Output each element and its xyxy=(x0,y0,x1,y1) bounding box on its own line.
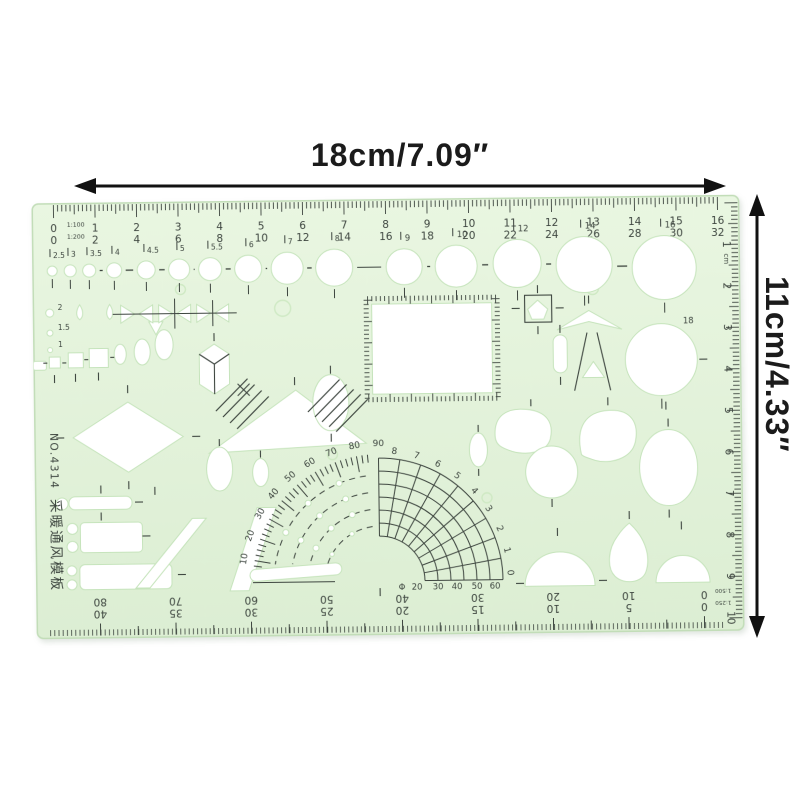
circle-cutout xyxy=(47,266,57,276)
arrow-head-bottom xyxy=(749,616,765,638)
diameter-label: 3.5 xyxy=(90,249,102,258)
ellipse-cutout xyxy=(312,374,349,430)
ruler-number: 50 xyxy=(320,593,334,605)
ruler-number: 4 xyxy=(721,365,733,372)
leaf-cutout xyxy=(579,410,636,462)
diameter-label: 16 xyxy=(665,220,676,230)
ruler-number: 30 xyxy=(471,591,485,603)
protractor-diameter: 30 xyxy=(433,582,444,592)
ruler-number: 10 xyxy=(255,232,269,244)
rectangle-cutout xyxy=(372,303,493,394)
ellipse-cutout xyxy=(114,344,126,364)
ruler-number: 35 xyxy=(169,607,183,619)
arc-dot xyxy=(336,480,342,486)
circle-cutout xyxy=(47,330,53,336)
round-cutout xyxy=(525,446,578,499)
product-photo: 18cm/7.09″ 11cm/4.33″ xyxy=(0,0,800,800)
diameter-label: 18 xyxy=(683,316,694,326)
arc-dot xyxy=(328,525,334,531)
ruler-number: 5 xyxy=(625,601,632,613)
protractor-diameter: 50 xyxy=(472,582,483,592)
ruler-number: 2 xyxy=(92,235,99,247)
scale-label: 1:250 xyxy=(715,599,732,605)
circle-cutout xyxy=(235,255,262,282)
model-number: NO.4314 xyxy=(47,433,60,489)
radiator-cutout xyxy=(69,496,132,510)
drafting-template: 1:100 1:200 cm 1:500 1:250 NO.4314 采暖通风模… xyxy=(31,195,744,640)
ruler-number: 40 xyxy=(395,592,409,604)
arc-dot xyxy=(317,513,323,519)
protractor-diameter: 40 xyxy=(452,582,463,592)
ruler-number: 60 xyxy=(244,594,258,606)
circle-cutout xyxy=(435,245,478,288)
square-cutout xyxy=(68,353,83,368)
diameter-label: 14 xyxy=(585,221,596,231)
arrow-head-top xyxy=(749,194,765,216)
radiator-cutout xyxy=(80,522,142,553)
circle-cutout xyxy=(83,264,96,277)
ellipse-cutout xyxy=(206,447,233,491)
ruler-number: 20 xyxy=(546,590,560,602)
diameter-label: 10 xyxy=(457,230,468,240)
diameter-label: 7 xyxy=(288,237,293,246)
ruler-number: 18 xyxy=(421,230,435,242)
diameter-label: 12 xyxy=(518,224,529,234)
ruler-number: 30 xyxy=(245,606,259,618)
ruler-number: 3 xyxy=(721,324,733,331)
ruler-number: 16 xyxy=(379,231,393,243)
ruler-number: 1 xyxy=(720,241,732,248)
unit-label: cm xyxy=(722,253,730,264)
ruler-number: 5 xyxy=(722,407,734,414)
circle-cutout xyxy=(64,265,76,277)
ruler-number: 5 xyxy=(258,220,265,232)
ruler-number: 28 xyxy=(628,228,642,240)
ruler-number: 10 xyxy=(724,611,736,625)
scale-label: 1:100 xyxy=(67,222,85,229)
circle-cutout xyxy=(556,236,613,293)
ruler-number: 12 xyxy=(296,232,310,244)
diameter-label: 9 xyxy=(405,234,411,244)
ellipse-cutout xyxy=(252,458,268,486)
arc-dot xyxy=(298,537,304,543)
ruler-number: 70 xyxy=(169,595,183,607)
protractor-diameter: 60 xyxy=(490,582,501,592)
scale-label: 1:200 xyxy=(67,234,85,241)
ruler-number: 6 xyxy=(722,448,734,455)
circle-cutout xyxy=(632,235,697,300)
ruler-number: 8 xyxy=(382,219,389,231)
ruler-number: 9 xyxy=(424,218,431,230)
circle-cutout xyxy=(48,348,53,353)
protractor-diameter: 20 xyxy=(412,583,423,593)
ruler-number: 0 xyxy=(50,235,57,247)
ruler-number: 0 xyxy=(50,223,57,235)
ruler-number: 0 xyxy=(701,588,708,600)
width-dimension-label: 18cm/7.09″ xyxy=(0,137,800,174)
ruler-number: 10 xyxy=(462,218,476,230)
circle-cutout xyxy=(137,261,155,279)
circle-cutout xyxy=(386,249,422,285)
diameter-label: 1 xyxy=(58,340,63,349)
protractor-degree: 10 xyxy=(239,552,251,565)
ruler-number: 11 xyxy=(503,217,517,229)
ruler-number: 0 xyxy=(701,600,708,612)
ruler-number: 7 xyxy=(341,219,348,231)
circle-cutout xyxy=(271,252,303,284)
circle-cutout xyxy=(107,263,122,278)
arrow-head-right xyxy=(704,178,726,194)
diameter-label: 2 xyxy=(58,303,63,312)
circle-cutout xyxy=(315,249,352,286)
radiator-end-circle xyxy=(67,580,77,590)
ruler-number: 14 xyxy=(628,216,642,228)
diameter-label: 3 xyxy=(71,250,76,259)
ruler-number: 10 xyxy=(622,589,636,601)
ruler-number: 4 xyxy=(133,234,140,246)
blob-cutout xyxy=(495,409,552,454)
ruler-number: 2 xyxy=(720,282,732,289)
ruler-number: 4 xyxy=(216,221,223,233)
ruler-number: 24 xyxy=(545,229,559,241)
ruler-number: 6 xyxy=(299,220,306,232)
arc-dot xyxy=(350,531,355,536)
radiator-end-circle xyxy=(67,541,78,552)
height-dimension-arrow xyxy=(744,190,770,642)
ruler-number: 20 xyxy=(396,604,410,616)
ellipse-cutout xyxy=(134,339,150,365)
ruler-number: 3 xyxy=(175,222,182,234)
ruler-number: 80 xyxy=(93,595,107,607)
ruler-number: 15 xyxy=(471,603,485,615)
width-dimension-arrow xyxy=(70,174,730,198)
small-rect-cutout xyxy=(33,361,46,370)
diameter-label: 1.5 xyxy=(58,323,70,332)
circle-cutout xyxy=(625,323,698,396)
arc-dot xyxy=(283,529,289,535)
diameter-label: 5.5 xyxy=(211,243,223,252)
ruler-number: 25 xyxy=(320,605,334,617)
ruler-number: 1 xyxy=(92,223,99,235)
square-cutout xyxy=(89,348,108,367)
slot-cutout xyxy=(553,335,567,373)
arrow-head-left xyxy=(74,178,96,194)
scale-label: 1:500 xyxy=(715,587,732,593)
arc-dot xyxy=(313,545,319,551)
ruler-number: 32 xyxy=(711,227,725,239)
protractor-grid-number: 0 xyxy=(505,570,515,577)
ruler-number: 2 xyxy=(133,222,140,234)
diameter-label: 4 xyxy=(115,248,120,257)
arc-dot xyxy=(330,552,335,557)
circle-cutout xyxy=(493,239,542,288)
protractor-degree: 80 xyxy=(348,440,361,452)
radiator-end-circle xyxy=(67,566,77,576)
ruler-number: 40 xyxy=(94,607,108,619)
circle-cutout xyxy=(169,259,190,280)
ruler-number: 9 xyxy=(724,573,736,580)
arc-dot xyxy=(349,512,355,518)
diameter-label: 2.5 xyxy=(53,251,65,260)
ruler-number: 8 xyxy=(723,531,735,538)
ruler-number: 12 xyxy=(545,217,559,229)
square-cutout xyxy=(49,357,60,368)
radiator-end-circle xyxy=(67,523,78,534)
arc-dot xyxy=(343,496,349,502)
ruler-number: 7 xyxy=(723,490,735,497)
circle-cutout xyxy=(46,309,54,317)
diameter-label: 5 xyxy=(180,244,185,253)
diameter-label: 4.5 xyxy=(147,246,159,255)
ellipse-cutout xyxy=(469,433,487,467)
chinese-title: 采暖通风模板 xyxy=(47,499,64,592)
phi-label: Φ xyxy=(399,583,406,593)
blob-cutout xyxy=(639,429,698,506)
diameter-label: 6 xyxy=(249,240,254,249)
ellipse-cutout xyxy=(155,330,173,360)
ruler-number: 10 xyxy=(547,602,561,614)
diameter-label: 8 xyxy=(335,234,340,243)
arc-dot xyxy=(305,500,311,506)
circle-cutout xyxy=(199,258,222,281)
protractor-degree: 90 xyxy=(373,439,385,449)
ruler-number: 16 xyxy=(711,215,725,227)
